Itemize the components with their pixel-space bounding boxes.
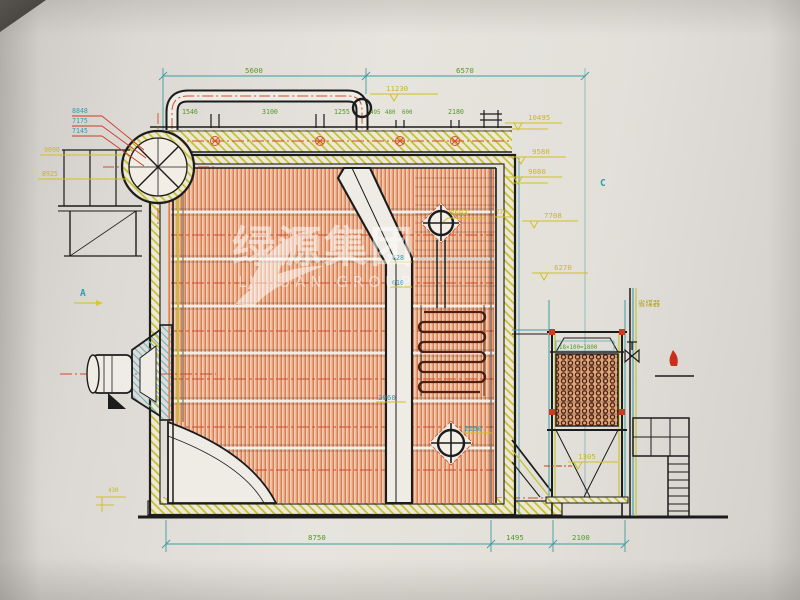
burner-bracket	[108, 393, 126, 409]
annotation: 628	[392, 254, 404, 262]
section-cut-marker	[655, 350, 694, 376]
annotation: 770	[496, 210, 507, 216]
elevation-label: 11230	[386, 84, 408, 93]
elevation-label: 9580	[532, 147, 550, 156]
dim-label: 2100	[572, 533, 590, 542]
elevation-label: 9080	[528, 167, 546, 176]
dim-label: 2180	[448, 108, 464, 116]
access-stairs	[633, 418, 689, 516]
view-arrow-a	[96, 300, 103, 306]
right-riser-pipe	[625, 288, 639, 516]
pipe-label: 7145	[72, 127, 88, 135]
dim-label: 495	[370, 110, 381, 116]
dim-label: 5600	[245, 66, 263, 75]
view-letter-a: A	[80, 288, 86, 299]
boiler-drawing: 5600 6570 11230 1546 3100 1255 495 480 6…	[0, 0, 800, 600]
pipe-label: 8848	[72, 107, 88, 115]
elevation-label: 1305	[578, 452, 596, 461]
photo-corner-shadow	[0, 0, 46, 32]
elevation-label: 10495	[528, 113, 550, 122]
economizer-label: 省煤器	[638, 299, 661, 308]
dim-label: 3100	[262, 108, 278, 116]
elevation-label: 7708	[544, 211, 562, 220]
elevation-label: 6270	[554, 263, 572, 272]
dim-label: 480	[385, 110, 396, 116]
dim-label: 1546	[182, 108, 198, 116]
pipe-label: 7175	[72, 117, 88, 125]
coil-pitch-label: 18×100=1800	[559, 345, 598, 351]
elevation-label: 9090	[44, 146, 60, 154]
flue-duct	[512, 330, 552, 497]
dim-label: 1495	[506, 533, 524, 542]
photographed-blueprint: 5600 6570 11230 1546 3100 1255 495 480 6…	[0, 0, 800, 600]
economizer	[546, 300, 628, 516]
annotation: 2960	[378, 393, 396, 402]
annotation: 8603	[450, 208, 468, 217]
view-letter-c: C	[600, 178, 606, 189]
header-band	[150, 110, 512, 156]
dim-label: 8750	[308, 533, 326, 542]
elevation-label: 8925	[42, 170, 58, 178]
annotation: 610	[392, 279, 404, 287]
dim-label: 1255	[334, 108, 350, 116]
dim-label: 6570	[456, 66, 474, 75]
dim-label: 600	[402, 110, 413, 116]
annotation: 430	[108, 488, 119, 494]
annotation: 2100	[464, 424, 482, 433]
